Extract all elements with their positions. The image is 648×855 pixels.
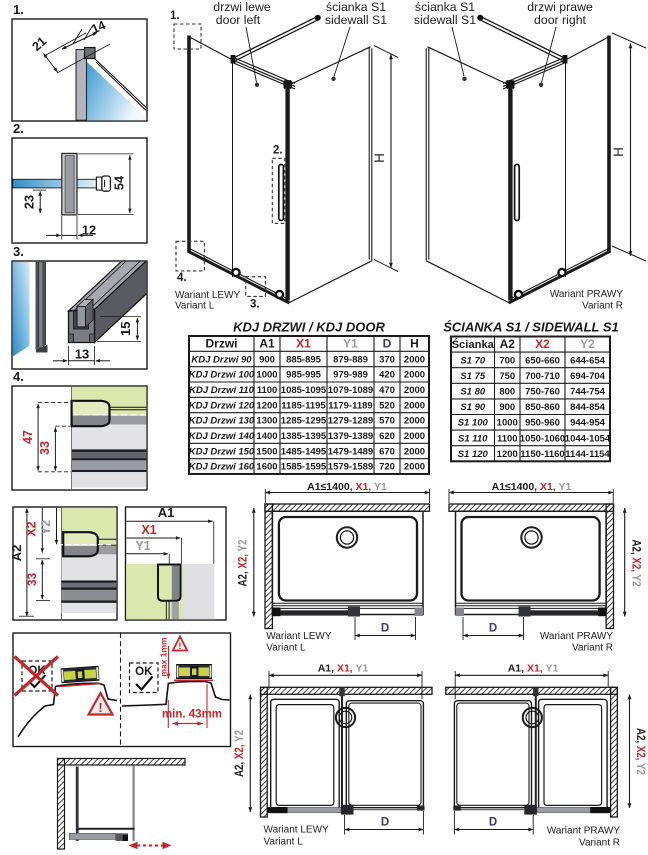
svg-text:S1 75: S1 75 xyxy=(460,371,486,382)
svg-text:720: 720 xyxy=(379,462,395,473)
svg-text:1285-1295: 1285-1295 xyxy=(281,416,327,427)
svg-text:min. 43mm: min. 43mm xyxy=(162,709,222,721)
svg-text:944-954: 944-954 xyxy=(570,418,606,429)
svg-text:620: 620 xyxy=(379,431,395,442)
svg-text:KDJ Drzwi 120: KDJ Drzwi 120 xyxy=(189,400,255,411)
svg-text:4.: 4. xyxy=(13,369,24,384)
svg-text:950-960: 950-960 xyxy=(525,418,560,429)
svg-text:2000: 2000 xyxy=(404,370,425,381)
svg-text:1179-1189: 1179-1189 xyxy=(328,400,372,411)
svg-text:A1: A1 xyxy=(259,336,275,350)
svg-text:KDJ Drzwi 140: KDJ Drzwi 140 xyxy=(189,431,255,442)
svg-text:670: 670 xyxy=(379,446,395,457)
svg-text:A1, X1, Y1: A1, X1, Y1 xyxy=(318,663,369,675)
svg-text:885-895: 885-895 xyxy=(286,354,322,365)
svg-text:Wariant PRAWY: Wariant PRAWY xyxy=(547,826,620,837)
svg-text:1079-1089: 1079-1089 xyxy=(328,385,373,396)
svg-text:979-989: 979-989 xyxy=(333,370,368,381)
svg-text:A1, X1, Y1: A1, X1, Y1 xyxy=(508,663,559,675)
svg-text:Drzwi: Drzwi xyxy=(205,336,237,350)
svg-text:2000: 2000 xyxy=(404,416,425,427)
svg-text:A2, X2, Y2: A2, X2, Y2 xyxy=(234,730,246,777)
svg-text:1479-1489: 1479-1489 xyxy=(328,446,373,457)
svg-text:33: 33 xyxy=(38,441,52,455)
svg-text:23: 23 xyxy=(22,195,37,209)
svg-text:1.: 1. xyxy=(13,2,24,17)
svg-text:Wariant PRAWY: Wariant PRAWY xyxy=(540,631,613,642)
svg-text:744-754: 744-754 xyxy=(570,387,606,398)
svg-text:A2, X2, Y2: A2, X2, Y2 xyxy=(634,728,646,775)
svg-text:A1≤1400, X1, Y1: A1≤1400, X1, Y1 xyxy=(492,481,572,493)
svg-text:drzwi prawe: drzwi prawe xyxy=(527,0,593,14)
svg-text:1200: 1200 xyxy=(497,449,518,460)
svg-text:844-854: 844-854 xyxy=(570,402,606,413)
svg-text:X1: X1 xyxy=(296,336,311,350)
svg-text:470: 470 xyxy=(379,385,395,396)
svg-text:2000: 2000 xyxy=(404,431,425,442)
svg-text:max 1mm: max 1mm xyxy=(159,637,169,677)
svg-text:D: D xyxy=(489,817,497,829)
svg-text:2.: 2. xyxy=(13,121,24,136)
svg-text:Variant R: Variant R xyxy=(572,643,613,654)
svg-text:D: D xyxy=(381,623,389,635)
svg-text:X1: X1 xyxy=(141,523,156,537)
svg-text:700-710: 700-710 xyxy=(525,371,560,382)
svg-text:D: D xyxy=(489,623,497,635)
svg-text:1300: 1300 xyxy=(256,416,277,427)
svg-text:A2: A2 xyxy=(500,337,516,351)
svg-text:Variant R: Variant R xyxy=(582,301,623,312)
svg-text:1500: 1500 xyxy=(256,446,277,457)
svg-text:370: 370 xyxy=(379,354,395,365)
svg-text:A2: A2 xyxy=(9,545,24,562)
svg-text:Ścianka: Ścianka xyxy=(452,338,495,351)
svg-text:KDJ DRZWI / KDJ DOOR: KDJ DRZWI / KDJ DOOR xyxy=(233,320,385,335)
svg-text:1200: 1200 xyxy=(256,400,277,411)
svg-text:850-860: 850-860 xyxy=(525,402,560,413)
svg-text:Variant L: Variant L xyxy=(175,301,215,312)
svg-text:drzwi lewe: drzwi lewe xyxy=(213,0,271,14)
svg-text:750-760: 750-760 xyxy=(525,387,560,398)
svg-text:X2: X2 xyxy=(535,337,550,351)
svg-text:644-654: 644-654 xyxy=(570,355,606,366)
svg-text:door right: door right xyxy=(534,13,587,27)
svg-text:Variant R: Variant R xyxy=(579,838,620,849)
svg-text:33: 33 xyxy=(25,573,39,587)
svg-text:1100: 1100 xyxy=(497,433,518,444)
svg-text:3.: 3. xyxy=(13,244,24,259)
svg-text:door left: door left xyxy=(216,13,261,27)
svg-text:1085-1095: 1085-1095 xyxy=(281,385,327,396)
svg-text:Y2: Y2 xyxy=(39,520,53,535)
svg-text:1100: 1100 xyxy=(257,385,278,396)
svg-text:!: ! xyxy=(178,641,181,652)
svg-text:1150-1160: 1150-1160 xyxy=(520,449,564,460)
svg-text:1.: 1. xyxy=(170,10,180,22)
svg-text:694-704: 694-704 xyxy=(570,371,606,382)
svg-text:2000: 2000 xyxy=(404,400,425,411)
svg-text:Y1: Y1 xyxy=(135,539,150,553)
svg-text:800: 800 xyxy=(499,387,515,398)
svg-text:879-889: 879-889 xyxy=(333,354,368,365)
svg-text:KDJ Drzwi 90: KDJ Drzwi 90 xyxy=(191,354,252,365)
svg-text:KDJ Drzwi 160: KDJ Drzwi 160 xyxy=(189,462,255,473)
svg-text:520: 520 xyxy=(379,400,395,411)
svg-text:1144-1154: 1144-1154 xyxy=(565,449,610,460)
svg-text:KDJ Drzwi 150: KDJ Drzwi 150 xyxy=(189,446,255,457)
svg-text:1000: 1000 xyxy=(497,418,518,429)
svg-text:2000: 2000 xyxy=(404,385,425,396)
svg-text:S1 80: S1 80 xyxy=(460,387,486,398)
svg-text:4.: 4. xyxy=(177,272,187,284)
svg-text:D: D xyxy=(383,336,392,350)
svg-text:ŚCIANKA S1 / SIDEWALL S1: ŚCIANKA S1 / SIDEWALL S1 xyxy=(443,320,619,335)
svg-text:Variant L: Variant L xyxy=(264,836,304,847)
svg-text:1044-1054: 1044-1054 xyxy=(565,433,611,444)
svg-text:3.: 3. xyxy=(250,299,260,311)
svg-text:ścianka S1: ścianka S1 xyxy=(326,0,386,14)
svg-text:54: 54 xyxy=(112,175,127,190)
svg-text:12: 12 xyxy=(82,223,96,238)
svg-text:H: H xyxy=(611,147,626,157)
svg-text:A1: A1 xyxy=(158,505,175,520)
svg-text:A1≤1400, X1, Y1: A1≤1400, X1, Y1 xyxy=(307,481,387,493)
svg-text:2000: 2000 xyxy=(404,446,425,457)
svg-text:13: 13 xyxy=(75,347,89,362)
svg-text:1050-1060: 1050-1060 xyxy=(520,433,565,444)
svg-text:Variant L: Variant L xyxy=(266,643,306,654)
svg-text:2000: 2000 xyxy=(404,462,425,473)
svg-text:S1 120: S1 120 xyxy=(458,449,489,460)
svg-text:1585-1595: 1585-1595 xyxy=(281,462,327,473)
svg-text:H: H xyxy=(410,336,419,350)
svg-text:420: 420 xyxy=(379,370,395,381)
svg-text:1600: 1600 xyxy=(256,462,277,473)
svg-text:sidewall S1: sidewall S1 xyxy=(414,13,476,27)
svg-text:1400: 1400 xyxy=(256,431,277,442)
svg-text:1279-1289: 1279-1289 xyxy=(328,416,373,427)
svg-text:1379-1389: 1379-1389 xyxy=(328,431,373,442)
svg-text:15: 15 xyxy=(118,322,133,336)
svg-text:1579-1589: 1579-1589 xyxy=(328,462,373,473)
svg-text:900: 900 xyxy=(499,402,515,413)
svg-text:650-660: 650-660 xyxy=(525,355,560,366)
svg-text:700: 700 xyxy=(499,355,515,366)
svg-text:KDJ Drzwi 130: KDJ Drzwi 130 xyxy=(189,416,255,427)
svg-text:S1 70: S1 70 xyxy=(460,355,486,366)
svg-text:Y2: Y2 xyxy=(580,337,595,351)
svg-text:750: 750 xyxy=(499,371,515,382)
svg-text:900: 900 xyxy=(259,354,275,365)
svg-text:1385-1395: 1385-1395 xyxy=(281,431,327,442)
svg-text:X2: X2 xyxy=(24,521,38,536)
svg-text:1000: 1000 xyxy=(256,370,277,381)
svg-text:KDJ Drzwi 100: KDJ Drzwi 100 xyxy=(189,370,255,381)
svg-text:ścianka S1: ścianka S1 xyxy=(415,0,475,14)
svg-text:1485-1495: 1485-1495 xyxy=(281,446,327,457)
svg-text:2000: 2000 xyxy=(404,354,425,365)
svg-text:Wariant LEWY: Wariant LEWY xyxy=(266,631,332,642)
svg-text:A2, X2, Y2: A2, X2, Y2 xyxy=(238,540,250,587)
svg-text:H: H xyxy=(372,153,387,163)
svg-text:S1 100: S1 100 xyxy=(458,418,489,429)
svg-text:A2, X2, Y2: A2, X2, Y2 xyxy=(629,540,641,587)
svg-text:S1 90: S1 90 xyxy=(460,402,486,413)
svg-text:sidewall S1: sidewall S1 xyxy=(325,13,387,27)
svg-text:Wariant LEWY: Wariant LEWY xyxy=(264,825,330,836)
svg-text:D: D xyxy=(381,817,389,829)
svg-text:S1 110: S1 110 xyxy=(458,433,488,444)
svg-text:2.: 2. xyxy=(273,145,283,157)
svg-text:KDJ Drzwi 110: KDJ Drzwi 110 xyxy=(189,385,254,396)
svg-text:47: 47 xyxy=(21,430,35,444)
svg-text:1185-1195: 1185-1195 xyxy=(281,400,326,411)
svg-text:570: 570 xyxy=(379,416,395,427)
svg-text:Wariant PRAWY: Wariant PRAWY xyxy=(550,289,623,300)
svg-text:985-995: 985-995 xyxy=(286,370,322,381)
svg-text:!: ! xyxy=(98,700,102,715)
svg-text:OK: OK xyxy=(135,666,153,678)
svg-text:Y1: Y1 xyxy=(343,336,358,350)
